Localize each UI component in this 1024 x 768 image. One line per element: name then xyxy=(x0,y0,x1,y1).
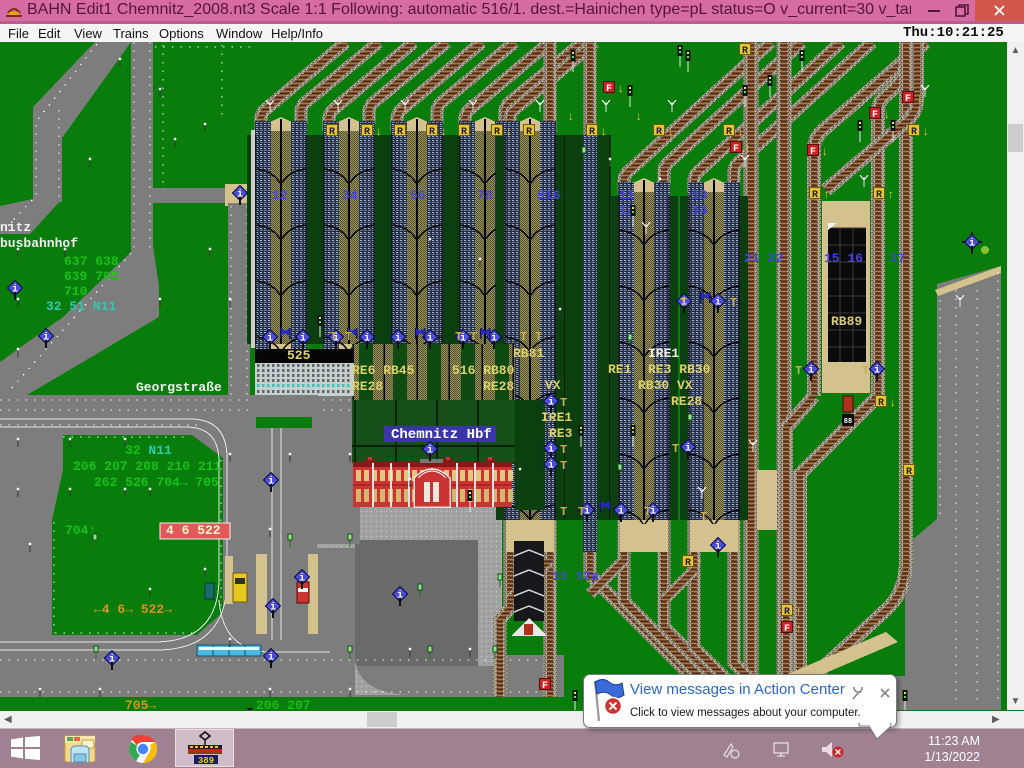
svg-text:↓: ↓ xyxy=(889,396,896,410)
svg-text:4 6 522: 4 6 522 xyxy=(166,523,221,538)
svg-text:↑: ↑ xyxy=(795,622,802,636)
svg-text:↑: ↑ xyxy=(696,556,703,570)
svg-text:T: T xyxy=(330,330,337,344)
svg-text:704↑: 704↑ xyxy=(65,523,96,538)
svg-text:32 51 N11: 32 51 N11 xyxy=(46,299,116,314)
svg-text:IRE1: IRE1 xyxy=(648,346,679,361)
svg-text:T: T xyxy=(345,330,352,344)
svg-text:21 22: 21 22 xyxy=(744,251,783,266)
svg-text:←4 6→ 522→: ←4 6→ 522→ xyxy=(94,602,172,617)
svg-text:14: 14 xyxy=(692,203,708,218)
svg-text:516 RB80: 516 RB80 xyxy=(452,363,515,378)
svg-text:RE28: RE28 xyxy=(352,379,383,394)
svg-text:↓: ↓ xyxy=(737,125,744,139)
svg-text:↓: ↓ xyxy=(617,82,624,96)
svg-text:916: 916 xyxy=(537,188,561,203)
svg-text:56: 56 xyxy=(410,188,426,203)
svg-text:Chemnitz Hbf: Chemnitz Hbf xyxy=(391,427,492,443)
svg-text:11: 11 xyxy=(619,188,635,203)
svg-text:525: 525 xyxy=(287,348,311,363)
svg-text:T: T xyxy=(730,296,737,310)
svg-text:T: T xyxy=(560,443,567,457)
svg-text:T: T xyxy=(535,330,542,344)
svg-text:389: 389 xyxy=(198,756,214,765)
svg-text:12: 12 xyxy=(272,188,288,203)
svg-text:15 16: 15 16 xyxy=(824,251,863,266)
svg-text:VX: VX xyxy=(545,378,561,393)
svg-text:RE3 RB30: RE3 RB30 xyxy=(648,362,711,377)
svg-text:639 705: 639 705 xyxy=(64,269,119,284)
svg-text:↑: ↑ xyxy=(795,605,802,619)
svg-text:↑: ↑ xyxy=(823,188,830,202)
svg-text:T: T xyxy=(578,505,585,519)
svg-text:T: T xyxy=(560,396,567,410)
svg-text:34: 34 xyxy=(342,188,358,203)
svg-text:busbahnhof: busbahnhof xyxy=(0,236,78,251)
svg-text:11 12a: 11 12a xyxy=(552,569,599,584)
svg-text:T: T xyxy=(644,505,651,519)
svg-text:↓: ↓ xyxy=(922,125,929,139)
svg-text:T: T xyxy=(672,442,679,456)
svg-text:↓: ↓ xyxy=(667,125,674,139)
svg-text:262 526 704→ 705: 262 526 704→ 705 xyxy=(94,475,219,490)
svg-text:T: T xyxy=(470,330,477,344)
svg-text:nitz: nitz xyxy=(0,220,31,235)
svg-text:↓: ↓ xyxy=(883,108,890,122)
svg-text:↓: ↓ xyxy=(600,125,607,139)
svg-text:RE6 RB45: RE6 RB45 xyxy=(352,363,415,378)
svg-text:78: 78 xyxy=(477,188,493,203)
svg-text:↓: ↓ xyxy=(505,125,512,139)
svg-text:Georgstraße: Georgstraße xyxy=(136,380,222,395)
svg-text:T: T xyxy=(560,505,567,519)
svg-text:32 N11: 32 N11 xyxy=(125,443,172,458)
svg-text:13: 13 xyxy=(692,188,708,203)
svg-text:710: 710 xyxy=(64,284,88,299)
svg-text:T: T xyxy=(700,510,707,524)
svg-text:↓: ↓ xyxy=(753,44,760,58)
svg-text:T: T xyxy=(520,330,527,344)
svg-text:T: T xyxy=(680,296,687,310)
svg-text:↓: ↓ xyxy=(567,110,574,124)
svg-text:↓: ↓ xyxy=(440,125,447,139)
svg-text:17: 17 xyxy=(890,251,906,266)
svg-text:↓: ↓ xyxy=(375,125,382,139)
svg-text:RE1: RE1 xyxy=(608,362,632,377)
svg-text:T: T xyxy=(862,364,869,378)
svg-text:T: T xyxy=(795,364,802,378)
svg-text:↓: ↓ xyxy=(821,145,828,159)
svg-text:↓: ↓ xyxy=(916,92,923,106)
svg-text:637 638: 637 638 xyxy=(64,254,119,269)
svg-text:RE3: RE3 xyxy=(549,426,573,441)
svg-text:RE28: RE28 xyxy=(483,379,514,394)
svg-text:705→: 705→ xyxy=(125,698,156,710)
svg-text:88: 88 xyxy=(844,418,852,426)
svg-text:↑: ↑ xyxy=(887,188,894,202)
svg-text:RB30 VX: RB30 VX xyxy=(638,378,693,393)
svg-text:RE28: RE28 xyxy=(671,394,702,409)
svg-text:IRE1: IRE1 xyxy=(541,410,572,425)
svg-text:RB89: RB89 xyxy=(831,314,862,329)
svg-text:↓: ↓ xyxy=(635,110,642,124)
svg-text:RB81: RB81 xyxy=(513,346,544,361)
svg-text:206 207: 206 207 xyxy=(256,698,311,710)
svg-text:T: T xyxy=(560,459,567,473)
svg-text:206 207 208 210 211: 206 207 208 210 211 xyxy=(73,459,221,474)
svg-text:↑: ↑ xyxy=(744,142,751,156)
svg-text:T: T xyxy=(455,330,462,344)
